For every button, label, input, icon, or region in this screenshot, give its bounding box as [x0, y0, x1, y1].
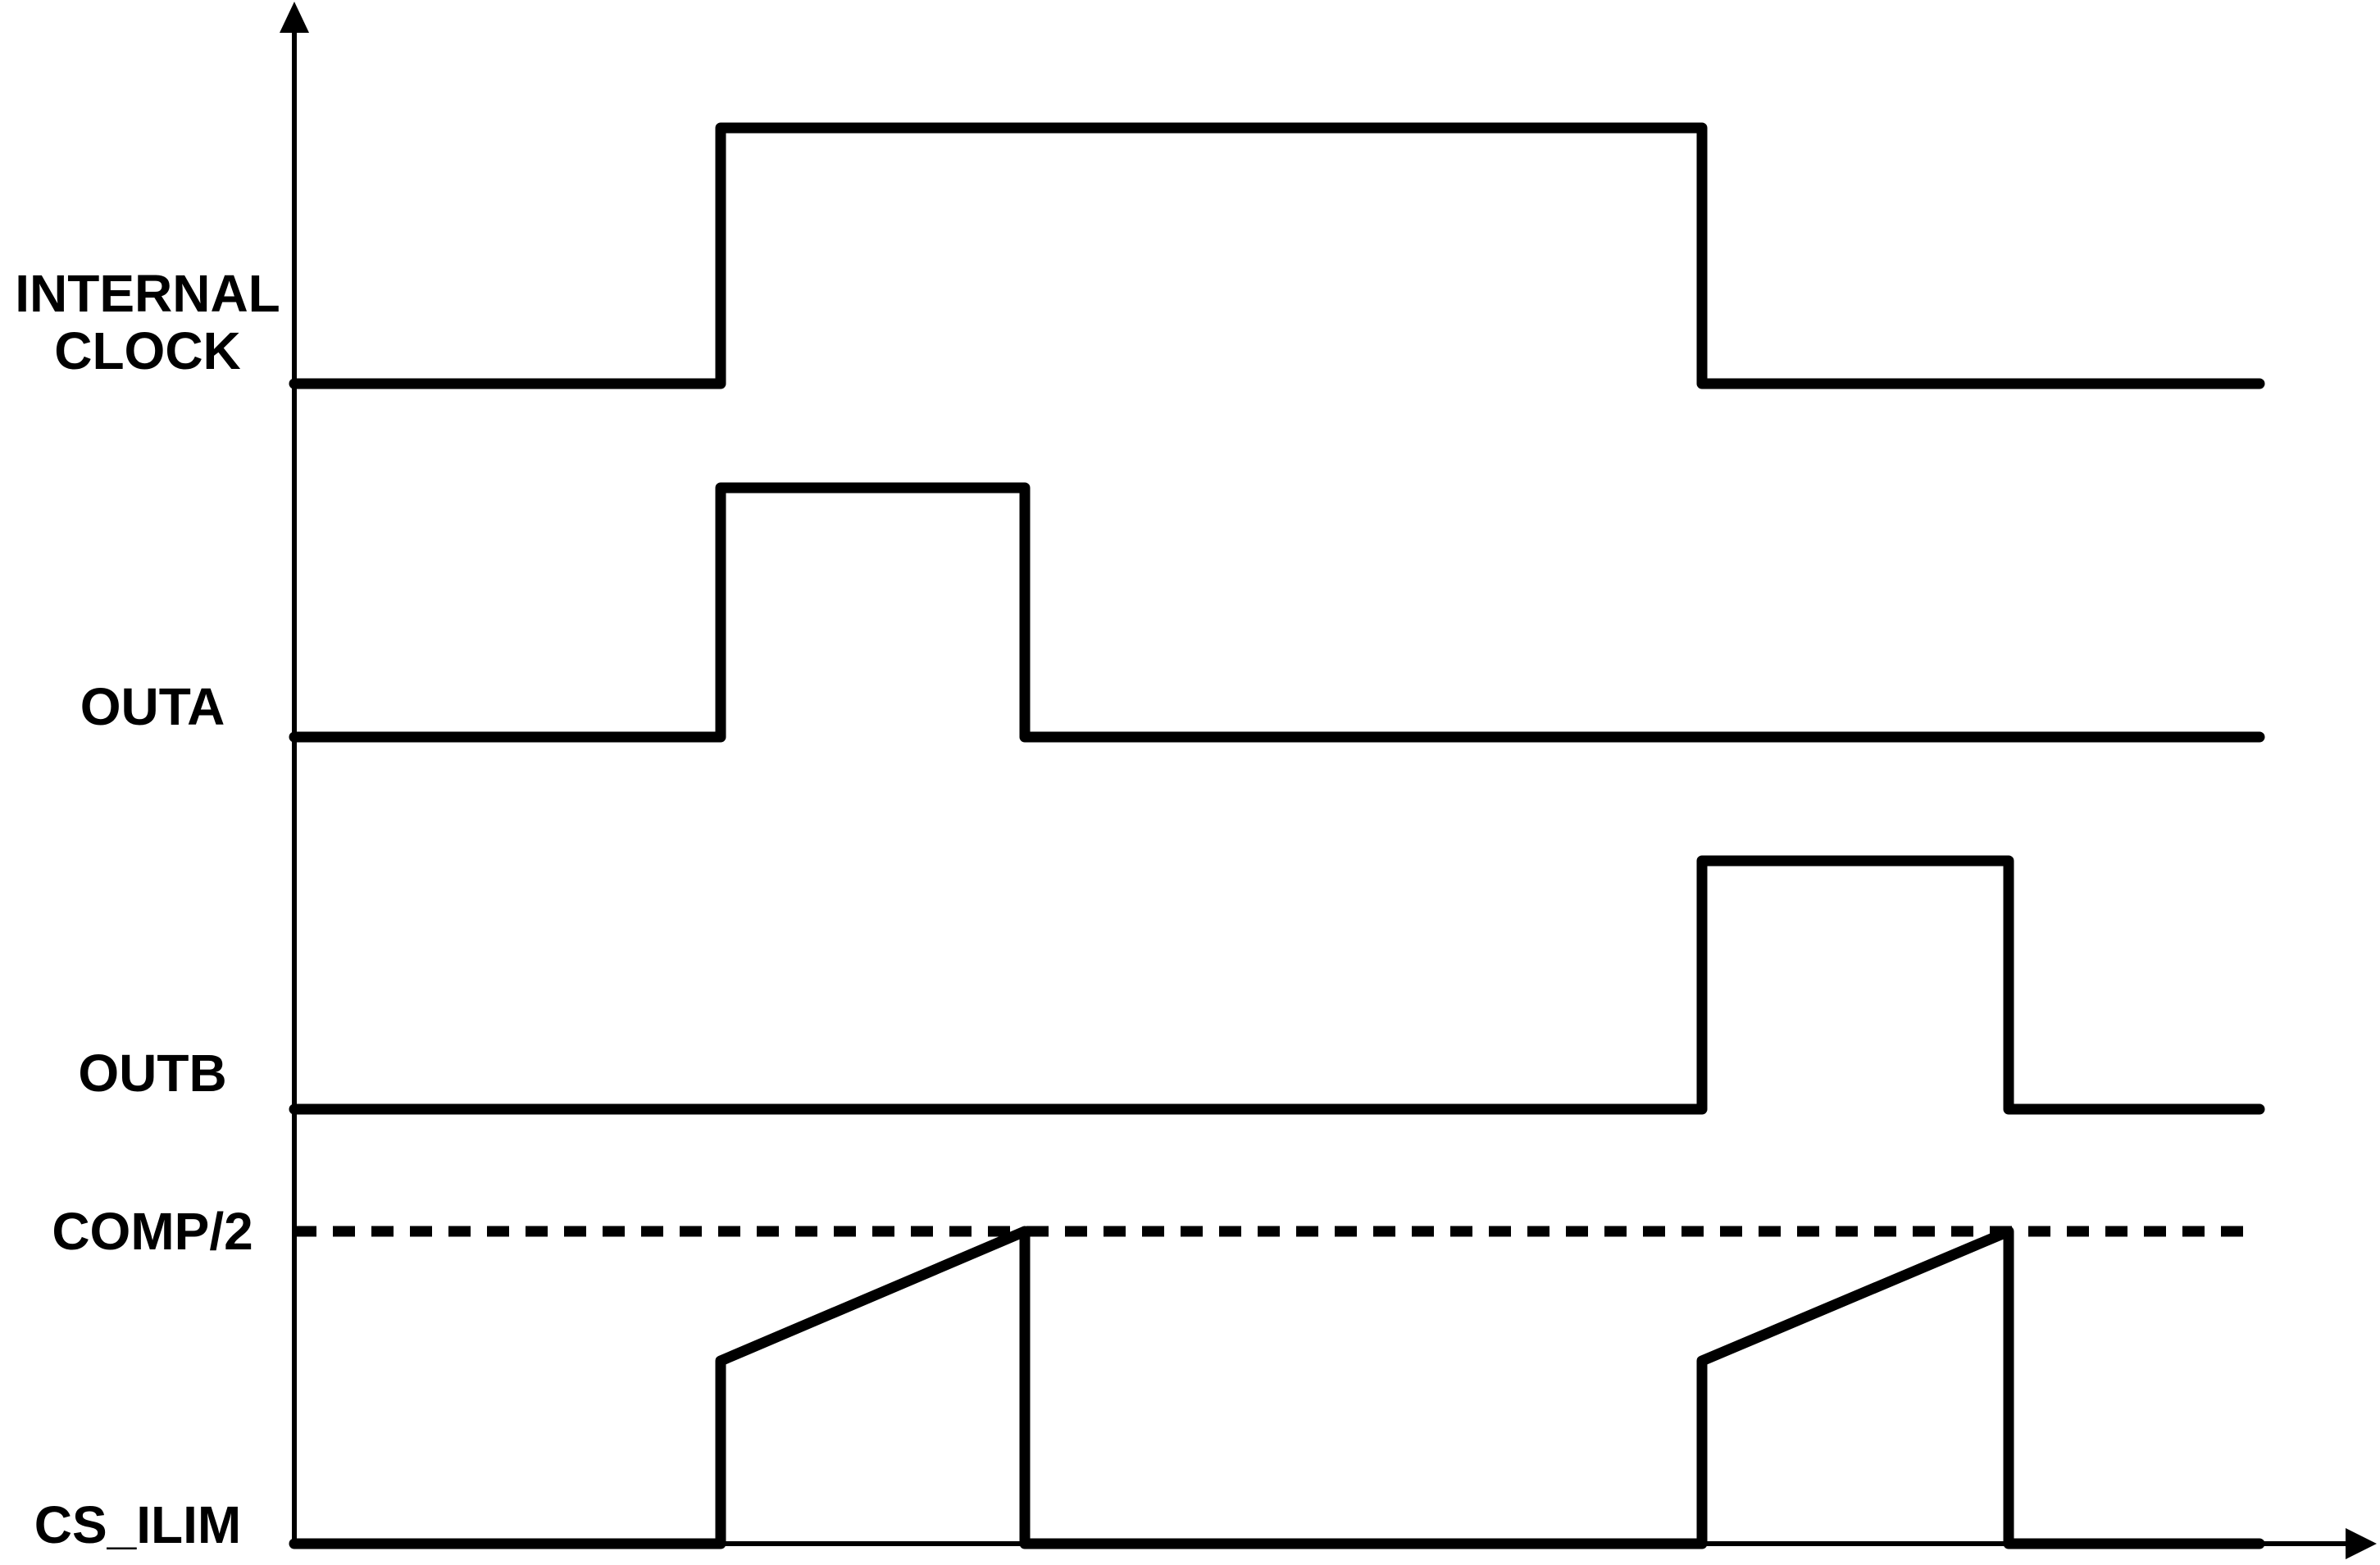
outb-waveform [294, 861, 2259, 1109]
timing-diagram: INTERNAL CLOCK OUTA OUTB COMP/2 CS_ILIM [0, 0, 2380, 1565]
timing-diagram-canvas: INTERNAL CLOCK OUTA OUTB COMP/2 CS_ILIM [0, 0, 2380, 1565]
outa-waveform [294, 488, 2259, 737]
x-axis-arrow-icon [2346, 1528, 2377, 1559]
internal-clock-label-line1: INTERNAL [15, 264, 280, 323]
outb-label: OUTB [78, 1044, 226, 1103]
internal-clock-waveform [294, 128, 2259, 384]
internal-clock-label-line2: CLOCK [54, 321, 241, 380]
cs-ilim-waveform [294, 1231, 2259, 1544]
cs-ilim-label: CS_ILIM [34, 1495, 241, 1554]
outa-label: OUTA [80, 677, 225, 736]
y-axis-arrow-icon [280, 2, 309, 33]
comp-half-label: COMP/2 [52, 1202, 253, 1261]
y-axis [280, 2, 309, 1544]
